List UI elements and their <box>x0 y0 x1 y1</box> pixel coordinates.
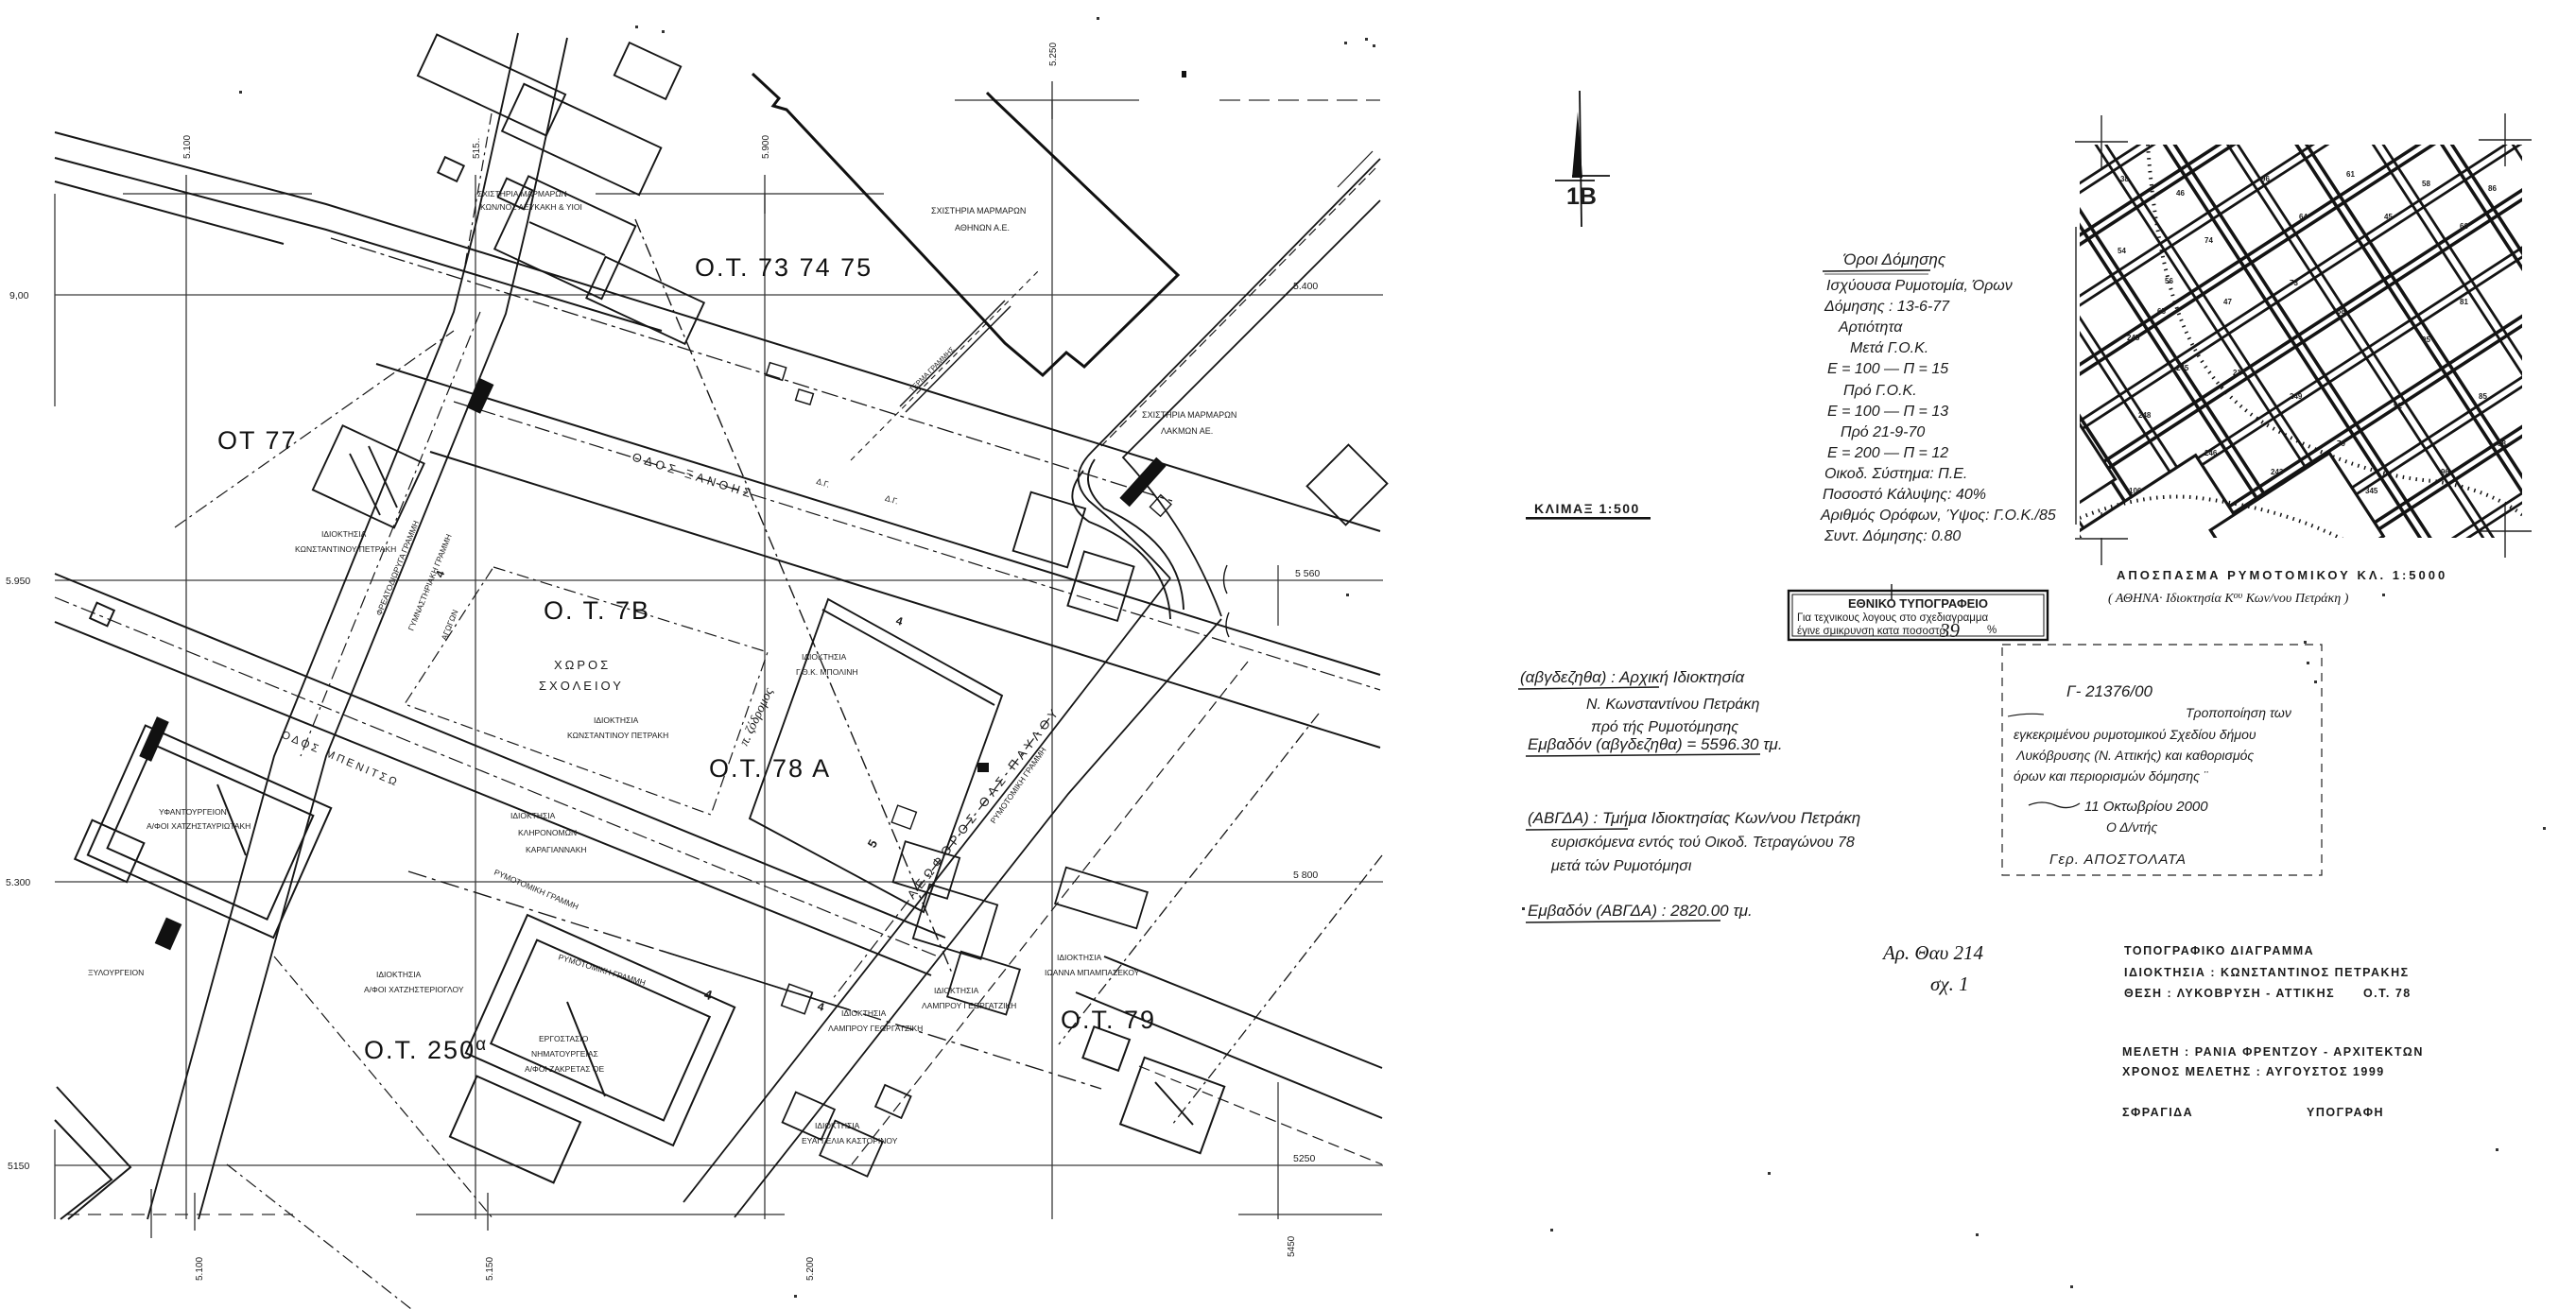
svg-text:ΙΔΙΟΚΤΗΣΙΑ: ΙΔΙΟΚΤΗΣΙΑ <box>802 652 847 662</box>
svg-text:ΧΩΡΟΣ: ΧΩΡΟΣ <box>554 658 611 672</box>
svg-text:Εμβαδόν (ΑΒΓΔΑ) : 2820.00 τμ.: Εμβαδόν (ΑΒΓΔΑ) : 2820.00 τμ. <box>1528 902 1753 920</box>
svg-text:5250: 5250 <box>1293 1153 1316 1164</box>
svg-text:( ΑΘΗΝΑ· Ιδιοκτησία Κου Κων/ν: ( ΑΘΗΝΑ· Ιδιοκτησία Κου Κων/νου Πετράκη … <box>2108 591 2349 606</box>
svg-text:515..: 515.. <box>472 138 482 159</box>
svg-text:46: 46 <box>2176 189 2185 198</box>
svg-text:Πρό 21-9-70: Πρό 21-9-70 <box>1841 424 1925 440</box>
svg-text:ΛΑΚΜΩΝ ΑΕ.: ΛΑΚΜΩΝ ΑΕ. <box>1161 426 1213 436</box>
svg-text:47: 47 <box>2223 298 2232 306</box>
svg-text:ΚΛΙΜΑΞ 1:500: ΚΛΙΜΑΞ 1:500 <box>1534 501 1640 516</box>
svg-text:Δόμησης : 13-6-77: Δόμησης : 13-6-77 <box>1824 299 1950 315</box>
svg-text:σχ. 1: σχ. 1 <box>1930 973 1969 995</box>
svg-text:Όροι Δόμησης: Όροι Δόμησης <box>1842 250 1946 268</box>
svg-text:64: 64 <box>2299 213 2308 221</box>
svg-text:85: 85 <box>2479 392 2487 401</box>
svg-text:(ΑΒΓΔΑ) : Τμήμα Ιδιοκτησίας Κω: (ΑΒΓΔΑ) : Τμήμα Ιδιοκτησίας Κων/νου Πετρ… <box>1528 809 1860 827</box>
svg-text:ΑΘΗΝΩΝ Α.Ε.: ΑΘΗΝΩΝ Α.Ε. <box>955 223 1010 233</box>
svg-text:246: 246 <box>2204 449 2218 457</box>
svg-text:Γ.Θ.Κ. ΜΠΟΛΙΝΗ: Γ.Θ.Κ. ΜΠΟΛΙΝΗ <box>796 667 857 677</box>
svg-text:73: 73 <box>2290 279 2298 287</box>
svg-text:πρό τής Ρυμοτόμησης: πρό τής Ρυμοτόμησης <box>1591 719 1738 735</box>
svg-text:88: 88 <box>2498 439 2506 448</box>
svg-text:Αρτιότητα: Αρτιότητα <box>1838 319 1903 336</box>
svg-text:106: 106 <box>2129 487 2142 495</box>
svg-text:5450: 5450 <box>1287 1235 1297 1257</box>
svg-text:Α/ΦΟΙ ΖΑΚΡΕΤΑΣ ΟΕ: Α/ΦΟΙ ΖΑΚΡΕΤΑΣ ΟΕ <box>525 1064 604 1074</box>
svg-text:Για τεχνικους λογους στο σχεδι: Για τεχνικους λογους στο σχεδιαγραμμα <box>1797 612 1989 624</box>
svg-text:ΧΡΟΝΟΣ ΜΕΛΕΤΗΣ : ΑΥΓΟΥΣΤΟΣ: ΧΡΟΝΟΣ ΜΕΛΕΤΗΣ : ΑΥΓΟΥΣΤΟΣ 1999 <box>2122 1065 2385 1078</box>
svg-text:ΙΔΙΟΚΤΗΣΙΑ: ΙΔΙΟΚΤΗΣΙΑ <box>321 529 367 539</box>
svg-text:ΚΩΝΣΤΑΝΤΙΝΟΥ ΠΕΤΡΑΚΗ: ΚΩΝΣΤΑΝΤΙΝΟΥ ΠΕΤΡΑΚΗ <box>567 731 668 740</box>
svg-text:Αριθμός Ορόφων, Ύψος: Γ.Ο.Κ./8: Αριθμός Ορόφων, Ύψος: Γ.Ο.Κ./85 <box>1820 508 2056 524</box>
svg-text:5.100: 5.100 <box>182 135 193 159</box>
svg-text:ΣΦΡΑΓΙΔΑ: ΣΦΡΑΓΙΔΑ <box>2122 1106 2193 1119</box>
svg-text:9,00: 9,00 <box>9 290 29 301</box>
svg-text:249: 249 <box>2290 392 2303 401</box>
svg-text:ΕΘΝΙΚΟ ΤΥΠΟΓΡΑΦΕΙΟ: ΕΘΝΙΚΟ ΤΥΠΟΓΡΑΦΕΙΟ <box>1848 596 1988 611</box>
svg-text:Πρό Γ.Ο.Κ.: Πρό Γ.Ο.Κ. <box>1843 383 1917 399</box>
svg-text:Ποσοστό Κάλυψης: 40%: Ποσοστό Κάλυψης: 40% <box>1823 487 1986 503</box>
svg-text:Ο.Τ. 250α: Ο.Τ. 250α <box>364 1035 488 1064</box>
svg-text:ΙΔΙΟΚΤΗΣΙΑ: ΙΔΙΟΚΤΗΣΙΑ <box>1057 953 1102 962</box>
svg-text:248: 248 <box>2138 411 2152 420</box>
svg-text:ΘΕΣΗ : ΛΥΚΟΒΡΥΣΗ - ΑΤΤΙΚΗΣ: ΘΕΣΗ : ΛΥΚΟΒΡΥΣΗ - ΑΤΤΙΚΗΣ Ο.Τ. 78 <box>2124 987 2412 1000</box>
svg-text:5.100: 5.100 <box>195 1257 205 1281</box>
svg-text:ΥΠΟΓΡΑΦΗ: ΥΠΟΓΡΑΦΗ <box>2307 1106 2384 1119</box>
svg-text:Οικοδ. Σύστημα: Π.Ε.: Οικοδ. Σύστημα: Π.Ε. <box>1824 466 1967 482</box>
svg-text:Γερ. ΑΠΟΣΤΟΛΑΤΑ: Γερ. ΑΠΟΣΤΟΛΑΤΑ <box>2049 852 2187 868</box>
svg-text:Α/ΦΟΙ ΧΑΤΖΗΣΤΑΥΡΙΩΤΑΚΗ: Α/ΦΟΙ ΧΑΤΖΗΣΤΑΥΡΙΩΤΑΚΗ <box>147 821 251 831</box>
svg-text:5150: 5150 <box>8 1161 30 1172</box>
svg-text:ΙΔΙΟΚΤΗΣΙΑ: ΙΔΙΟΚΤΗΣΙΑ <box>841 1008 887 1018</box>
svg-text:96: 96 <box>2441 468 2449 476</box>
svg-text:5 560: 5 560 <box>1295 568 1320 579</box>
svg-text:ΥΦΑΝΤΟΥΡΓΕΙΟΝ: ΥΦΑΝΤΟΥΡΓΕΙΟΝ <box>159 807 227 817</box>
svg-text:εγκεκριμένου ρυμοτομικού Σχεδ: εγκεκριμένου ρυμοτομικού Σχεδίου δήμου <box>2014 727 2256 742</box>
svg-text:ευρισκόμενα εντός τού Οικοδ. Τ: ευρισκόμενα εντός τού Οικοδ. Τετραγώνου … <box>1551 835 1855 851</box>
svg-text:5.250: 5.250 <box>1048 43 1059 66</box>
svg-text:5.900: 5.900 <box>761 135 771 159</box>
svg-text:79: 79 <box>2337 439 2345 448</box>
svg-text:245: 245 <box>2176 364 2189 372</box>
svg-text:ΝΗΜΑΤΟΥΡΓΕΙΑΣ: ΝΗΜΑΤΟΥΡΓΕΙΑΣ <box>531 1049 598 1059</box>
svg-text:92: 92 <box>2394 402 2402 410</box>
svg-text:Μετά Γ.Ο.Κ.: Μετά Γ.Ο.Κ. <box>1850 340 1928 356</box>
svg-text:Ε = 200 — Π = 12: Ε = 200 — Π = 12 <box>1827 445 1948 461</box>
svg-text:245: 245 <box>2127 334 2140 342</box>
svg-text:5.300: 5.300 <box>6 877 30 888</box>
svg-text:%: % <box>1987 625 1997 636</box>
svg-text:ΙΔΙΟΚΤΗΣΙΑ: ΙΔΙΟΚΤΗΣΙΑ <box>510 811 556 820</box>
svg-text:ΙΔΙΟΚΤΗΣΙΑ: ΙΔΙΟΚΤΗΣΙΑ <box>376 970 422 979</box>
svg-text:Λυκόβρυσης (Ν. Αττικής) και κ: Λυκόβρυσης (Ν. Αττικής) και καθορισμός <box>2015 748 2254 763</box>
svg-text:Ν. Κωνσταντίνου Πετράκη: Ν. Κωνσταντίνου Πετράκη <box>1586 697 1759 713</box>
svg-text:61: 61 <box>2346 170 2355 179</box>
svg-text:5.200: 5.200 <box>805 1257 816 1281</box>
svg-text:ΙΔΙΟΚΤΗΣΙΑ: ΙΔΙΟΚΤΗΣΙΑ <box>934 986 979 995</box>
svg-text:1Β: 1Β <box>1566 183 1597 210</box>
svg-text:Εμβαδόν (αβγδεζηθα) = 5596.30: Εμβαδόν (αβγδεζηθα) = 5596.30 τμ. <box>1528 735 1783 753</box>
svg-text:Ο.Τ. 79: Ο.Τ. 79 <box>1061 1006 1156 1034</box>
svg-text:56: 56 <box>2165 277 2173 285</box>
svg-text:5.950: 5.950 <box>6 576 30 587</box>
svg-text:Γ- 21376/00: Γ- 21376/00 <box>2066 682 2153 700</box>
svg-text:58: 58 <box>2422 180 2430 188</box>
svg-text:ΚΩΝΣΤΑΝΤΙΝΟΥ ΠΕΤΡΑΚΗ: ΚΩΝΣΤΑΝΤΙΝΟΥ ΠΕΤΡΑΚΗ <box>295 544 396 554</box>
svg-text:ΙΔΙΟΚΤΗΣΙΑ : ΚΩΝΣΤΑΝΤΙΝΟΣ ΠΕ: ΙΔΙΟΚΤΗΣΙΑ : ΚΩΝΣΤΑΝΤΙΝΟΣ ΠΕΤΡΑΚΗΣ <box>2124 966 2410 979</box>
svg-text:214: 214 <box>2233 369 2246 377</box>
svg-text:39: 39 <box>1939 619 1961 642</box>
svg-text:ΞΥΛΟΥΡΓΕΙΟΝ: ΞΥΛΟΥΡΓΕΙΟΝ <box>88 968 144 977</box>
svg-text:ΕΥΑΓΓΕΛΙΑ ΚΑΣΤΟΡΙΝΟΥ: ΕΥΑΓΓΕΛΙΑ ΚΑΣΤΟΡΙΝΟΥ <box>802 1136 898 1145</box>
svg-text:Συντ. Δόμησης: 0.80: Συντ. Δόμησης: 0.80 <box>1824 528 1961 544</box>
svg-text:ΙΔΙΟΚΤΗΣΙΑ: ΙΔΙΟΚΤΗΣΙΑ <box>815 1121 860 1130</box>
svg-text:Ε = 100 — Π = 15: Ε = 100 — Π = 15 <box>1827 361 1948 377</box>
svg-text:ΙΔΙΟΚΤΗΣΙΑ: ΙΔΙΟΚΤΗΣΙΑ <box>594 715 639 725</box>
svg-text:Ο. Τ. 7Β: Ο. Τ. 7Β <box>544 596 650 625</box>
svg-text:ΣΧΙΣΤΗΡΙΑ ΜΑΡΜΑΡΩΝ: ΣΧΙΣΤΗΡΙΑ ΜΑΡΜΑΡΩΝ <box>477 189 567 198</box>
svg-text:81: 81 <box>2460 298 2468 306</box>
svg-text:68: 68 <box>2337 307 2345 316</box>
svg-text:Ε = 100 — Π = 13: Ε = 100 — Π = 13 <box>1827 404 1948 420</box>
svg-text:38: 38 <box>2120 175 2129 183</box>
svg-text:66: 66 <box>2460 222 2468 231</box>
svg-text:Αρ. Θαυ 214: Αρ. Θαυ 214 <box>1881 941 1983 964</box>
svg-text:ΣΧΙΣΤΗΡΙΑ ΜΑΡΜΑΡΩΝ: ΣΧΙΣΤΗΡΙΑ ΜΑΡΜΑΡΩΝ <box>931 206 1026 215</box>
svg-text:ΚΑΡΑΓΙΑΝΝΑΚΗ: ΚΑΡΑΓΙΑΝΝΑΚΗ <box>526 845 587 854</box>
svg-text:ΤΟΠΟΓΡΑΦΙΚΟ ΔΙΑΓΡΑΜΜΑ: ΤΟΠΟΓΡΑΦΙΚΟ ΔΙΑΓΡΑΜΜΑ <box>2124 944 2314 957</box>
svg-text:όρων και περιορισμών δόμησης: όρων και περιορισμών δόμησης ¨ <box>2014 768 2208 784</box>
svg-text:45: 45 <box>2384 213 2393 221</box>
svg-text:ΛΑΜΠΡΟΥ ΓΕΩΡΓΑΤΖΙΚΗ: ΛΑΜΠΡΟΥ ΓΕΩΡΓΑΤΖΙΚΗ <box>828 1024 923 1033</box>
svg-text:95: 95 <box>2422 336 2430 344</box>
svg-text:Ο.Τ. 78 Α: Ο.Τ. 78 Α <box>709 754 831 783</box>
svg-text:Ο.Τ. 73 74 75: Ο.Τ. 73 74 75 <box>695 253 873 282</box>
svg-text:μετά τών Ρυμοτόμησι: μετά τών Ρυμοτόμησι <box>1550 858 1692 874</box>
svg-text:ΛΑΜΠΡΟΥ ΓΕΩΡΓΑΤΖΙΚΗ: ΛΑΜΠΡΟΥ ΓΕΩΡΓΑΤΖΙΚΗ <box>922 1001 1016 1010</box>
svg-text:96: 96 <box>2261 175 2270 183</box>
svg-text:ΕΡΓΟΣΤΑΣΙΟ: ΕΡΓΟΣΤΑΣΙΟ <box>539 1034 589 1043</box>
svg-text:ΣΧΟΛΕΙΟΥ: ΣΧΟΛΕΙΟΥ <box>539 679 624 693</box>
svg-text:86: 86 <box>2488 184 2497 193</box>
svg-text:Ο Δ/ντής: Ο Δ/ντής <box>2106 819 2158 835</box>
svg-text:(αβγδεζηθα) : Αρχική Ιδιοκτησί: (αβγδεζηθα) : Αρχική Ιδιοκτησία <box>1520 668 1745 686</box>
svg-text:65: 65 <box>2157 307 2166 316</box>
svg-text:Ισχύουσα Ρυμοτομία, Όρων: Ισχύουσα Ρυμοτομία, Όρων <box>1826 278 2013 294</box>
svg-text:ΜΕΛΕΤΗ : ΡΑΝΙΑ ΦΡΕΝΤΖΟΥ - Α: ΜΕΛΕΤΗ : ΡΑΝΙΑ ΦΡΕΝΤΖΟΥ - ΑΡΧΙΤΕΚΤΩΝ <box>2122 1045 2424 1059</box>
svg-text:5.150: 5.150 <box>485 1257 495 1281</box>
svg-text:έγινε σμικρυνση κατα ποσοστό: έγινε σμικρυνση κατα ποσοστό <box>1797 626 1945 637</box>
svg-text:ΑΠΟΣΠΑΣΜΑ ΡΥΜΟΤΟΜΙΚΟΥ ΚΛ: ΑΠΟΣΠΑΣΜΑ ΡΥΜΟΤΟΜΙΚΟΥ ΚΛ. 1:5000 <box>2117 568 2447 582</box>
svg-text:74: 74 <box>2204 236 2213 245</box>
svg-text:11 Οκτωβρίου 2000: 11 Οκτωβρίου 2000 <box>2084 799 2208 815</box>
svg-text:54: 54 <box>2118 247 2126 255</box>
svg-text:ΚΛΗΡΟΝΟΜΩΝ: ΚΛΗΡΟΝΟΜΩΝ <box>518 828 577 837</box>
svg-text:243: 243 <box>2271 468 2284 476</box>
svg-text:Α/ΦΟΙ ΧΑΤΖΗΣΤΕΡΙΟΓΛΟΥ: Α/ΦΟΙ ΧΑΤΖΗΣΤΕΡΙΟΓΛΟΥ <box>364 985 464 994</box>
svg-text:345: 345 <box>2365 487 2378 495</box>
svg-text:ΙΩΑΝΝΑ ΜΠΑΜΠΑΣΕΚΟΥ: ΙΩΑΝΝΑ ΜΠΑΜΠΑΣΕΚΟΥ <box>1045 968 1140 977</box>
svg-text:ΣΧΙΣΤΗΡΙΑ ΜΑΡΜΑΡΩΝ: ΣΧΙΣΤΗΡΙΑ ΜΑΡΜΑΡΩΝ <box>1142 410 1236 420</box>
svg-text:Τροποποίηση των: Τροποποίηση των <box>2186 705 2291 720</box>
svg-text:ΟΤ 77: ΟΤ 77 <box>217 426 298 455</box>
svg-text:5 800: 5 800 <box>1293 870 1318 881</box>
svg-text:ΚΩΝ/ΝΟΣ ΛΕΥΚΑΚΗ & ΥΙΟΙ: ΚΩΝ/ΝΟΣ ΛΕΥΚΑΚΗ & ΥΙΟΙ <box>480 202 582 212</box>
